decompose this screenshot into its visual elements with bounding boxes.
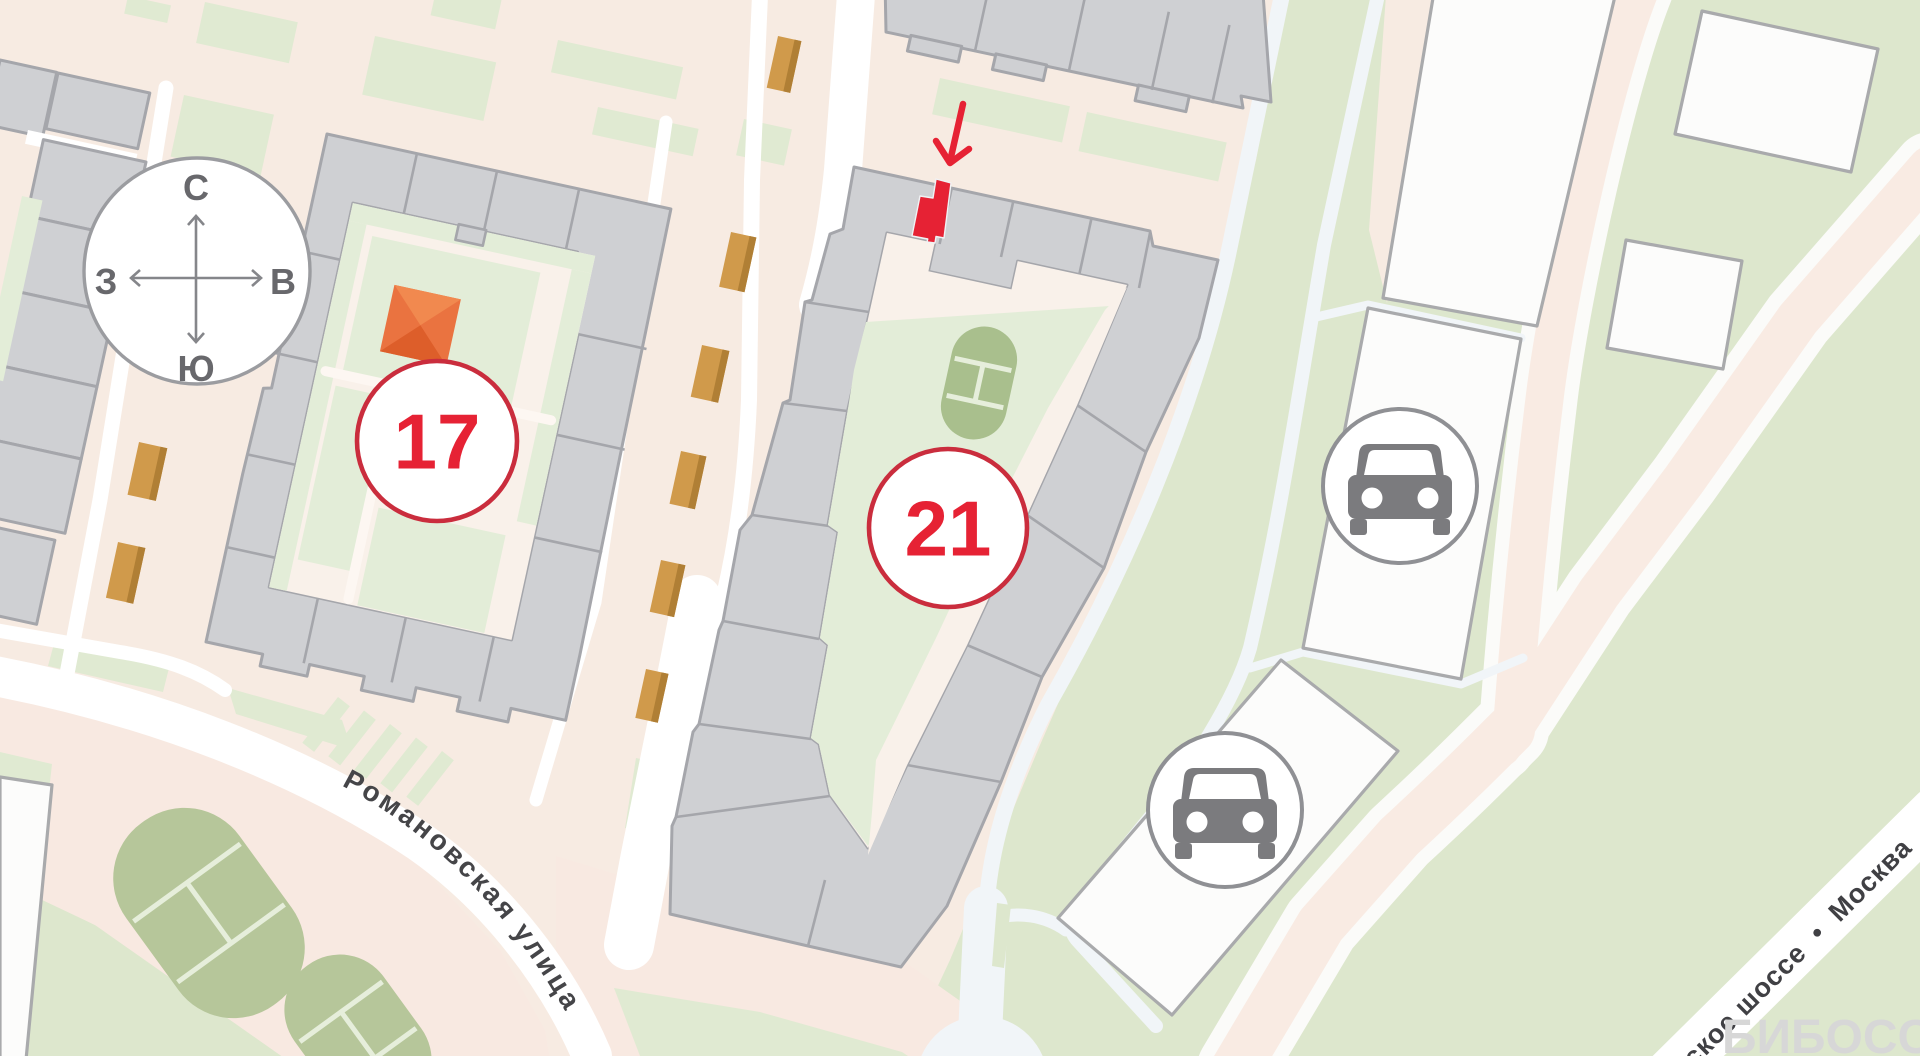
svg-text:17: 17 (394, 398, 481, 486)
svg-text:БИБОСС: БИБОСС (1722, 1011, 1920, 1056)
svg-text:21: 21 (905, 485, 992, 573)
svg-text:З: З (95, 261, 118, 302)
svg-text:В: В (270, 261, 296, 302)
svg-text:Ю: Ю (177, 348, 214, 389)
svg-text:С: С (183, 167, 209, 208)
